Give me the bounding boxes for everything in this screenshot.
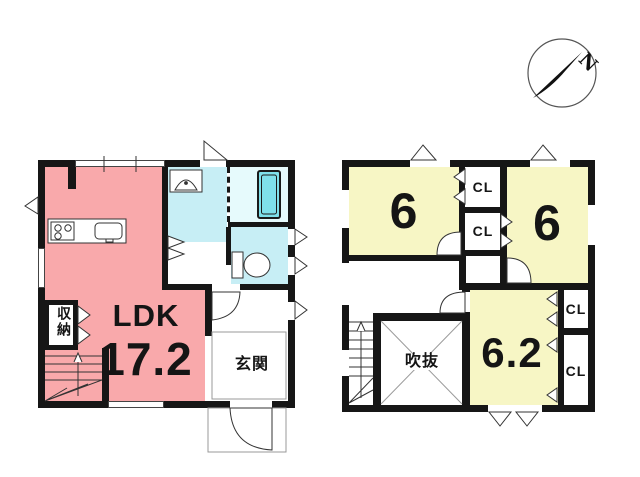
compass-icon: N xyxy=(528,39,602,107)
closet-label-2: CL xyxy=(465,224,501,238)
ldk-label: LDK xyxy=(86,300,206,331)
stairs-icon xyxy=(349,322,373,403)
storage-label: 収納 xyxy=(51,306,71,338)
window-ticks xyxy=(104,156,136,172)
floor-plan-canvas: N xyxy=(0,0,640,477)
closet-label-4: CL xyxy=(561,364,591,378)
ldk-area-value: 17.2 xyxy=(76,336,216,382)
bedroom-bottom-area: 6.2 xyxy=(466,332,558,374)
toilet-icon xyxy=(232,252,270,278)
kitchen-counter-icon xyxy=(48,219,126,243)
bedroom-right-area: 6 xyxy=(507,198,588,248)
bedroom-left-area: 6 xyxy=(349,186,459,236)
bathtub-icon xyxy=(258,171,280,218)
void-label: 吹抜 xyxy=(398,354,446,370)
closet-label-1: CL xyxy=(465,180,501,194)
closet-label-3: CL xyxy=(561,302,591,316)
entrance-label: 玄関 xyxy=(226,357,278,373)
washbasin-icon xyxy=(170,170,202,192)
